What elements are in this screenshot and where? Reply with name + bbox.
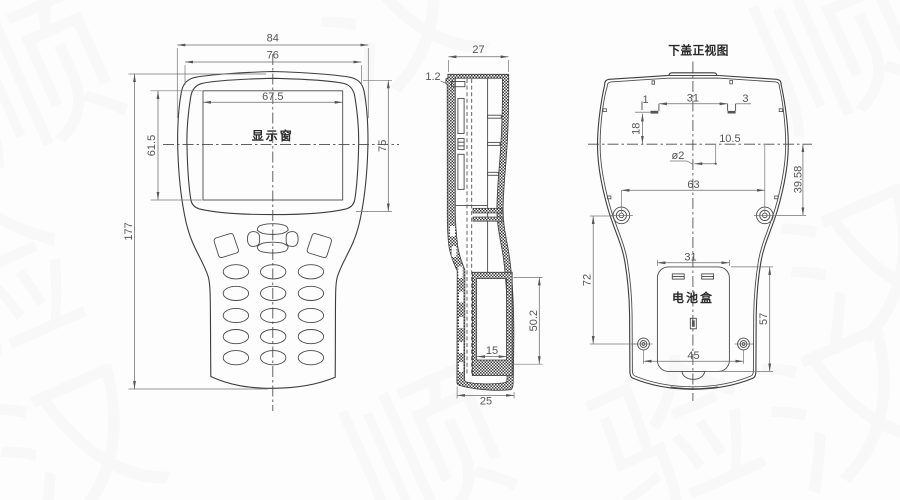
svg-text:39.58: 39.58: [792, 166, 804, 194]
svg-text:ø2: ø2: [671, 150, 684, 162]
svg-text:15: 15: [486, 345, 498, 357]
svg-text:1.2: 1.2: [425, 71, 440, 83]
svg-text:18: 18: [631, 123, 643, 135]
svg-text:27: 27: [472, 44, 484, 56]
svg-text:63: 63: [687, 179, 699, 191]
svg-text:67.5: 67.5: [262, 91, 283, 103]
svg-text:57: 57: [758, 313, 770, 325]
svg-text:下盖正视图: 下盖正视图: [668, 44, 729, 58]
svg-text:25: 25: [480, 396, 492, 408]
svg-text:31: 31: [687, 92, 699, 104]
svg-text:75: 75: [377, 140, 389, 152]
svg-text:61.5: 61.5: [146, 135, 158, 156]
svg-text:76: 76: [267, 50, 279, 62]
svg-text:10.5: 10.5: [719, 133, 740, 145]
svg-text:3: 3: [742, 93, 748, 105]
svg-text:50.2: 50.2: [528, 310, 540, 331]
svg-text:84: 84: [267, 33, 279, 45]
svg-text:72: 72: [582, 274, 594, 286]
svg-text:31: 31: [684, 252, 696, 264]
svg-text:显示窗: 显示窗: [252, 128, 294, 143]
svg-text:177: 177: [123, 222, 135, 240]
svg-text:电池盒: 电池盒: [672, 290, 714, 305]
svg-text:1: 1: [643, 94, 649, 106]
svg-text:45: 45: [687, 350, 699, 362]
